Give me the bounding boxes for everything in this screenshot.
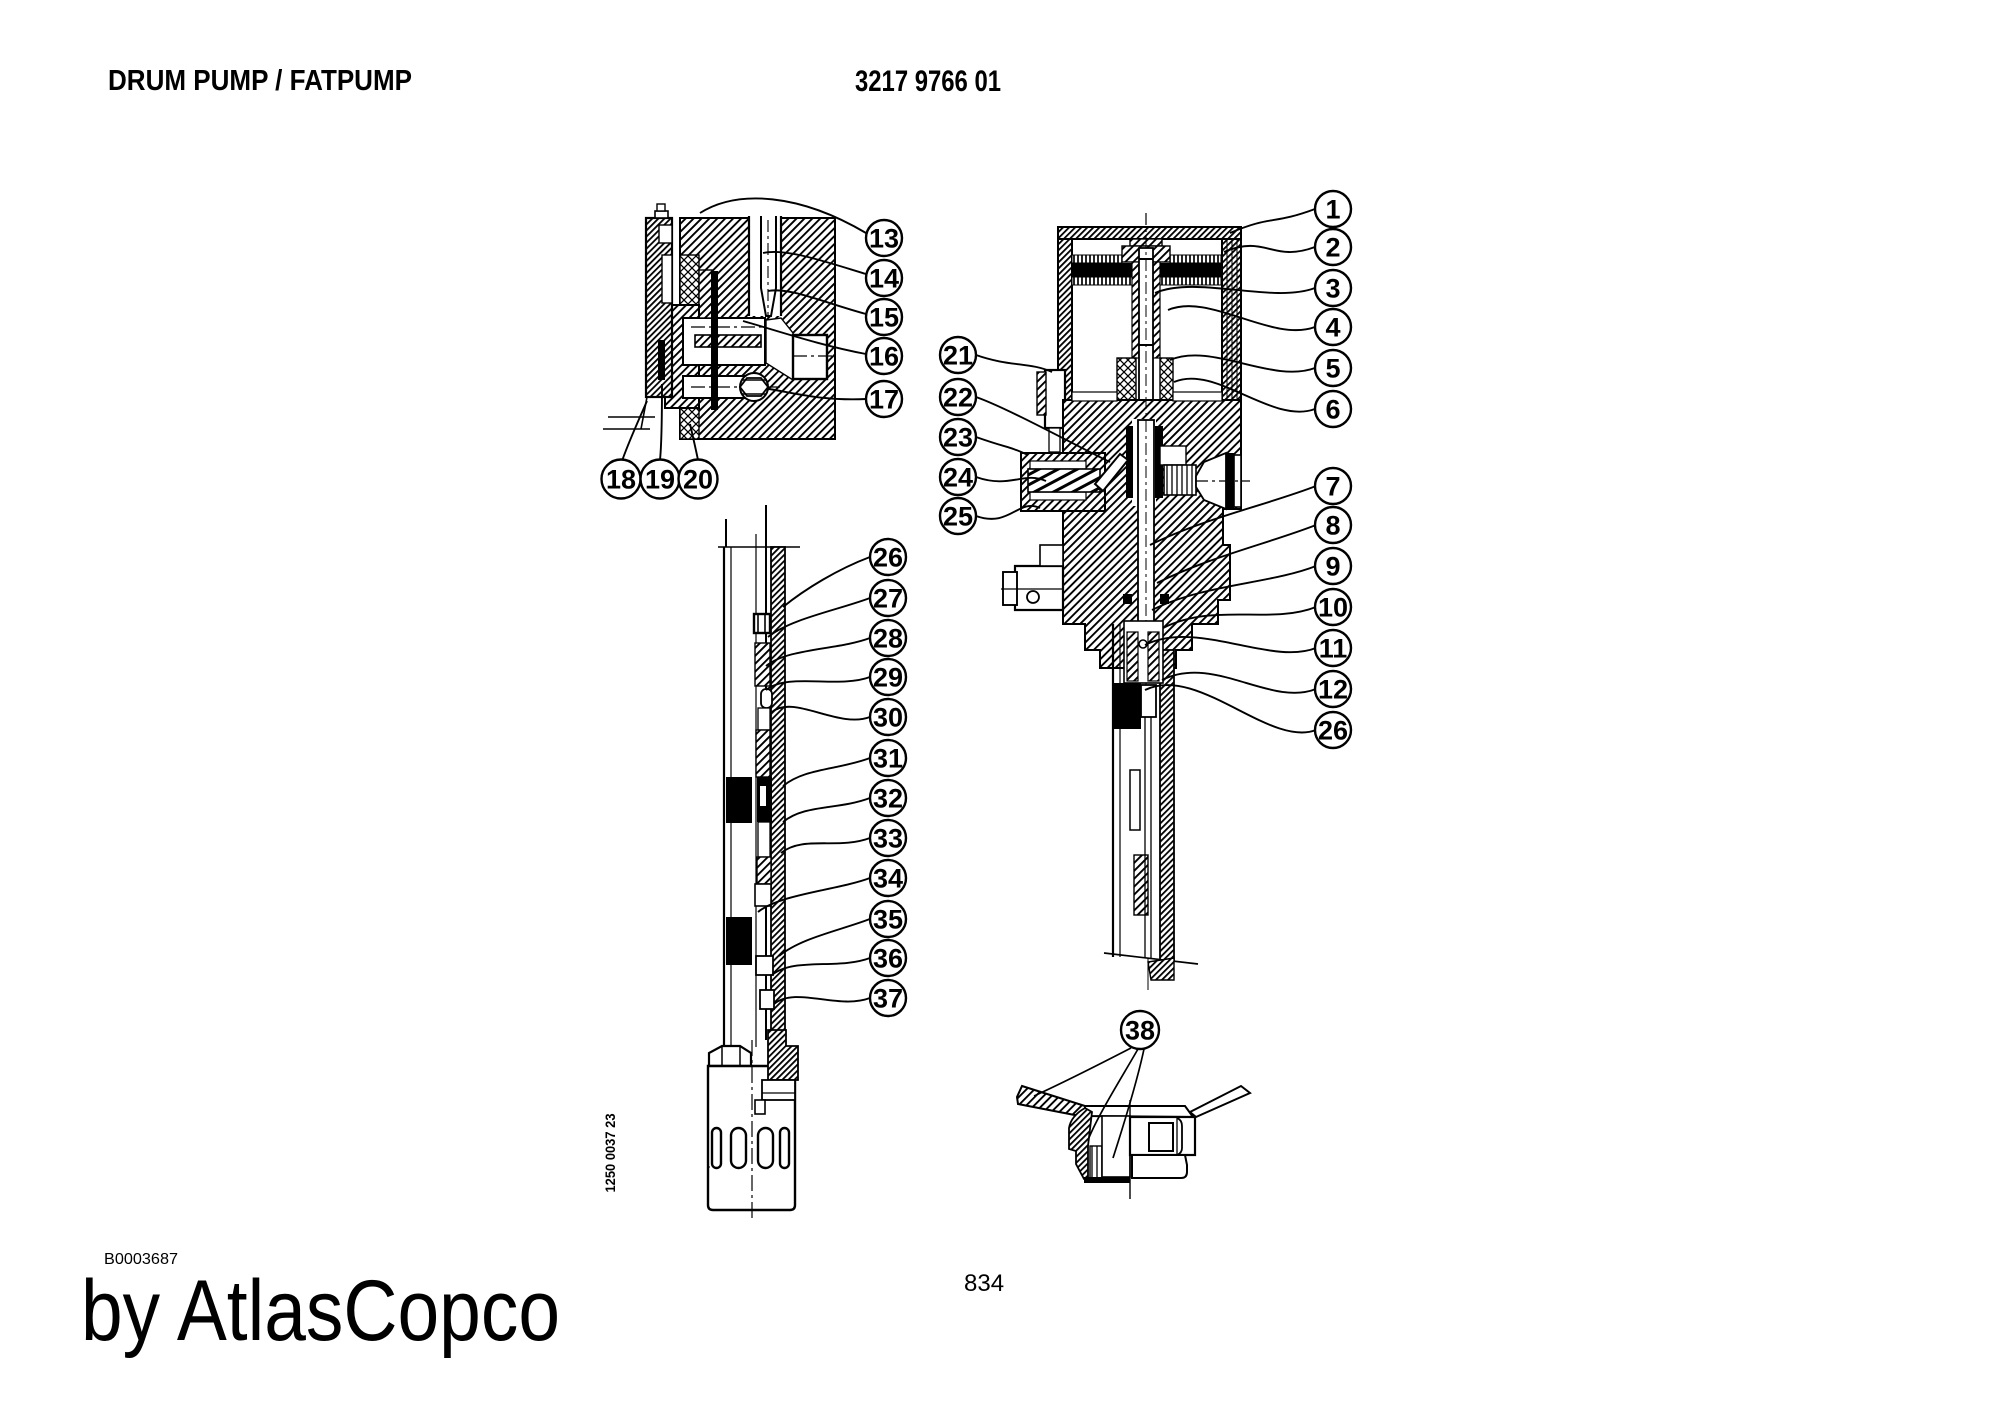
svg-text:35: 35 bbox=[873, 905, 903, 935]
svg-text:7: 7 bbox=[1325, 472, 1340, 502]
svg-text:16: 16 bbox=[869, 342, 899, 372]
svg-text:34: 34 bbox=[873, 864, 903, 894]
svg-text:1250 0037 23: 1250 0037 23 bbox=[602, 1113, 618, 1192]
svg-text:19: 19 bbox=[645, 465, 675, 495]
svg-text:13: 13 bbox=[869, 224, 899, 254]
svg-text:26: 26 bbox=[1318, 716, 1348, 746]
svg-text:28: 28 bbox=[873, 624, 903, 654]
svg-text:3217 9766 01: 3217 9766 01 bbox=[855, 65, 1001, 98]
svg-text:22: 22 bbox=[943, 383, 973, 413]
svg-text:27: 27 bbox=[873, 584, 903, 614]
svg-text:11: 11 bbox=[1319, 634, 1348, 664]
svg-text:29: 29 bbox=[873, 663, 903, 693]
svg-text:37: 37 bbox=[873, 984, 903, 1014]
svg-text:14: 14 bbox=[869, 264, 899, 294]
svg-text:24: 24 bbox=[943, 463, 973, 493]
svg-text:15: 15 bbox=[869, 303, 899, 333]
svg-text:6: 6 bbox=[1325, 395, 1340, 425]
svg-text:1: 1 bbox=[1325, 195, 1340, 225]
svg-text:36: 36 bbox=[873, 944, 903, 974]
svg-text:23: 23 bbox=[943, 423, 973, 453]
svg-text:10: 10 bbox=[1318, 593, 1348, 623]
svg-text:21: 21 bbox=[943, 341, 973, 371]
svg-text:2: 2 bbox=[1325, 233, 1340, 263]
svg-text:by AtlasCopco: by AtlasCopco bbox=[81, 1263, 560, 1359]
svg-text:31: 31 bbox=[873, 744, 903, 774]
svg-text:3: 3 bbox=[1325, 274, 1340, 304]
svg-text:25: 25 bbox=[943, 502, 973, 532]
svg-text:18: 18 bbox=[606, 465, 636, 495]
svg-text:8: 8 bbox=[1325, 511, 1340, 541]
svg-text:5: 5 bbox=[1325, 354, 1340, 384]
svg-text:33: 33 bbox=[873, 824, 903, 854]
svg-text:32: 32 bbox=[873, 784, 903, 814]
svg-text:834: 834 bbox=[964, 1270, 1004, 1297]
svg-text:17: 17 bbox=[869, 385, 899, 415]
svg-text:DRUM PUMP / FATPUMP: DRUM PUMP / FATPUMP bbox=[108, 65, 412, 97]
svg-text:30: 30 bbox=[873, 703, 903, 733]
svg-text:38: 38 bbox=[1125, 1016, 1155, 1046]
svg-text:20: 20 bbox=[683, 465, 713, 495]
svg-text:9: 9 bbox=[1325, 552, 1340, 582]
svg-text:4: 4 bbox=[1325, 313, 1340, 343]
svg-text:12: 12 bbox=[1318, 675, 1348, 705]
svg-text:26: 26 bbox=[873, 543, 903, 573]
